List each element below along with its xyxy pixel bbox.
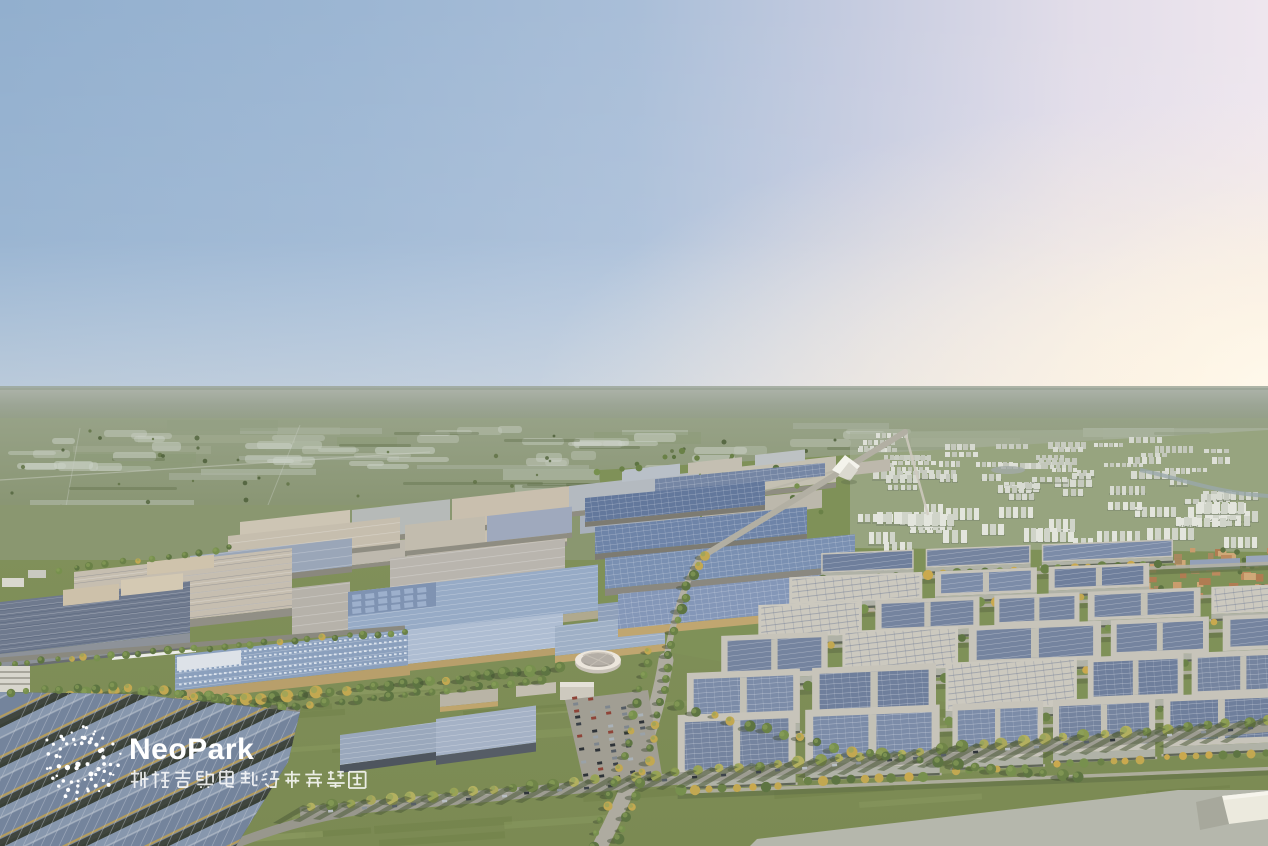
svg-text:NeoPark: NeoPark: [129, 733, 254, 766]
